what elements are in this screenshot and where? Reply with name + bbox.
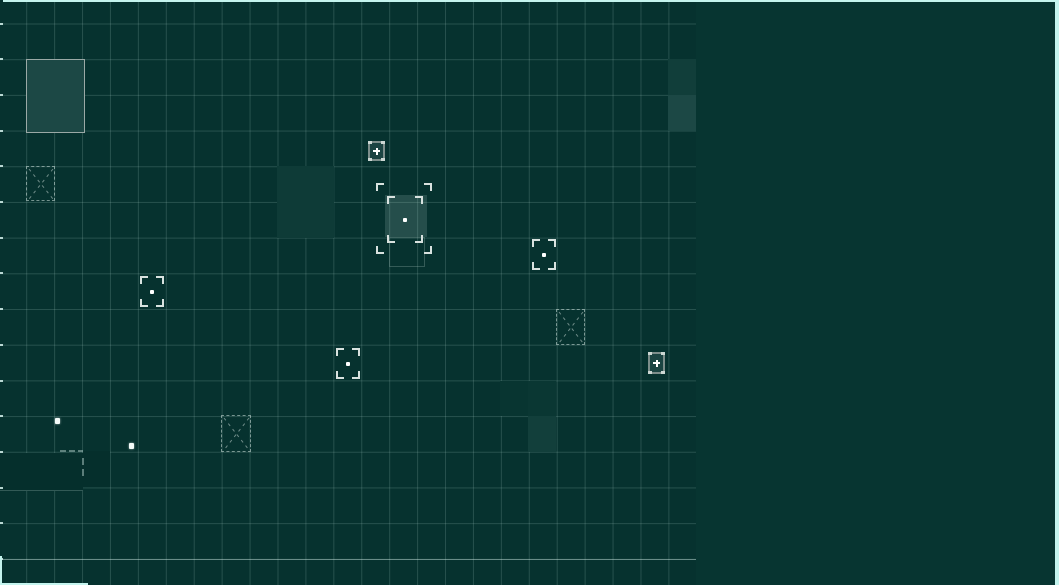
- bracket-corner-icon: [548, 262, 556, 270]
- entity-dot: [403, 218, 407, 222]
- bracket-target-marker-icon[interactable]: [334, 346, 362, 381]
- dashed-x-marker-icon[interactable]: [556, 309, 585, 345]
- bracket-corner-icon: [156, 299, 164, 307]
- highlighted-cell: [277, 166, 334, 238]
- bracket-corner-icon: [387, 196, 395, 204]
- entity-dot: [542, 253, 546, 257]
- highlighted-cell: [500, 381, 529, 416]
- bracket-corner-icon: [140, 276, 148, 284]
- marker-corner: [661, 352, 665, 355]
- ruler-tick-icon: [0, 380, 3, 382]
- ruler-tick-icon: [0, 94, 3, 96]
- ghost-footprint-outline: [389, 237, 425, 267]
- ruler-tick-icon: [0, 130, 3, 132]
- bracket-corner-icon: [548, 239, 556, 247]
- plus-icon: [376, 148, 378, 155]
- ruler-tick-icon: [0, 23, 3, 25]
- highlighted-cell: [528, 416, 556, 452]
- map-overlays: [0, 0, 1059, 585]
- marker-corner: [381, 158, 385, 161]
- viewport-border-left: [0, 556, 2, 585]
- map-viewport: [0, 0, 1059, 585]
- bracket-corner-icon: [352, 348, 360, 356]
- bracket-corner-icon: [156, 276, 164, 284]
- ruler-tick-icon: [0, 451, 3, 453]
- fog-edge-dash: [69, 450, 75, 452]
- ruler-tick-icon: [0, 415, 3, 417]
- viewport-border-right: [1055, 0, 1059, 585]
- viewport-border-top: [3, 0, 1059, 2]
- entity-dot[interactable]: [129, 443, 134, 449]
- bracket-corner-icon: [336, 371, 344, 379]
- ruler-tick-icon: [0, 308, 3, 310]
- bracket-corner-icon: [140, 299, 148, 307]
- plus-icon: [656, 360, 658, 367]
- bracket-target-marker-icon[interactable]: [530, 237, 558, 272]
- fog-edge-dash: [82, 469, 84, 476]
- bracket-corner-icon: [336, 348, 344, 356]
- bracket-corner-icon: [424, 183, 432, 191]
- fog-patch: [83, 451, 110, 487]
- entity-dot: [150, 290, 154, 294]
- bracket-corner-icon: [376, 183, 384, 191]
- ruler-tick-icon: [0, 522, 3, 524]
- marker-corner: [368, 141, 372, 144]
- bracket-corner-icon: [352, 371, 360, 379]
- ruler-tick-icon: [0, 58, 3, 60]
- highlighted-cell: [668, 95, 696, 131]
- ruler-tick-icon: [0, 201, 3, 203]
- fog-patch: [0, 453, 83, 491]
- plus-box-marker-icon[interactable]: [368, 141, 385, 161]
- fog-edge-dash: [60, 450, 66, 452]
- highlighted-cell: [528, 381, 556, 416]
- dashed-x-marker-icon[interactable]: [26, 166, 55, 201]
- bracket-corner-icon: [415, 196, 423, 204]
- marker-corner: [648, 371, 652, 374]
- bracket-corner-icon: [424, 246, 432, 254]
- plus-box-marker-icon[interactable]: [648, 352, 665, 374]
- marker-corner: [381, 141, 385, 144]
- bracket-corner-icon: [532, 262, 540, 270]
- fog-edge-dash: [82, 458, 84, 465]
- bracket-corner-icon: [376, 246, 384, 254]
- marker-corner: [661, 371, 665, 374]
- entity-dot: [346, 362, 350, 366]
- marker-corner: [368, 158, 372, 161]
- ruler-tick-icon: [0, 272, 3, 274]
- marker-corner: [648, 352, 652, 355]
- highlighted-cell: [668, 59, 696, 95]
- ruler-tick-icon: [0, 487, 3, 489]
- dashed-x-marker-icon[interactable]: [221, 415, 251, 452]
- bracket-corner-icon: [532, 239, 540, 247]
- fog-edge-dash: [78, 450, 83, 452]
- ruler-tick-icon: [0, 237, 3, 239]
- ruler-tick-icon: [0, 165, 3, 167]
- ruler-tick-icon: [0, 344, 3, 346]
- bracket-target-marker-icon[interactable]: [138, 274, 166, 309]
- highlighted-cell: [26, 59, 85, 133]
- bright-gridline: [0, 559, 696, 560]
- entity-dot[interactable]: [55, 418, 60, 424]
